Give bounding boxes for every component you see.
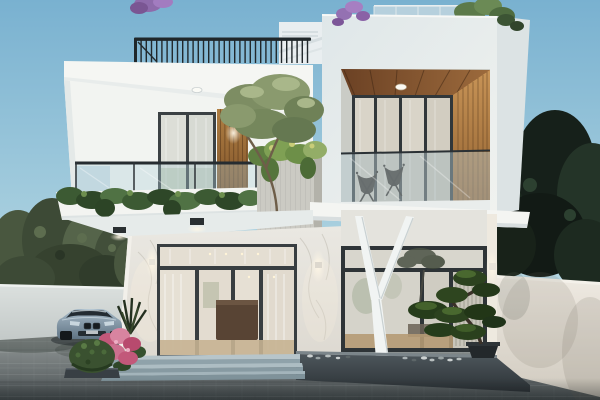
rooftop-railing <box>134 38 311 64</box>
villa-render <box>0 0 600 400</box>
entrance-glass-doors <box>157 244 297 358</box>
loggia-downlight <box>396 84 407 90</box>
ceiling-downlight <box>192 87 202 92</box>
tower-volume <box>322 1 530 214</box>
scene-canvas <box>0 0 600 400</box>
soffit-light <box>190 218 204 225</box>
car-plate <box>86 331 98 335</box>
recessed-loggia <box>341 69 490 212</box>
corner-sconce <box>489 263 496 270</box>
foreground-vignette <box>0 378 600 400</box>
loggia-glass-balustrade <box>341 151 490 213</box>
soffit-light <box>113 227 126 233</box>
